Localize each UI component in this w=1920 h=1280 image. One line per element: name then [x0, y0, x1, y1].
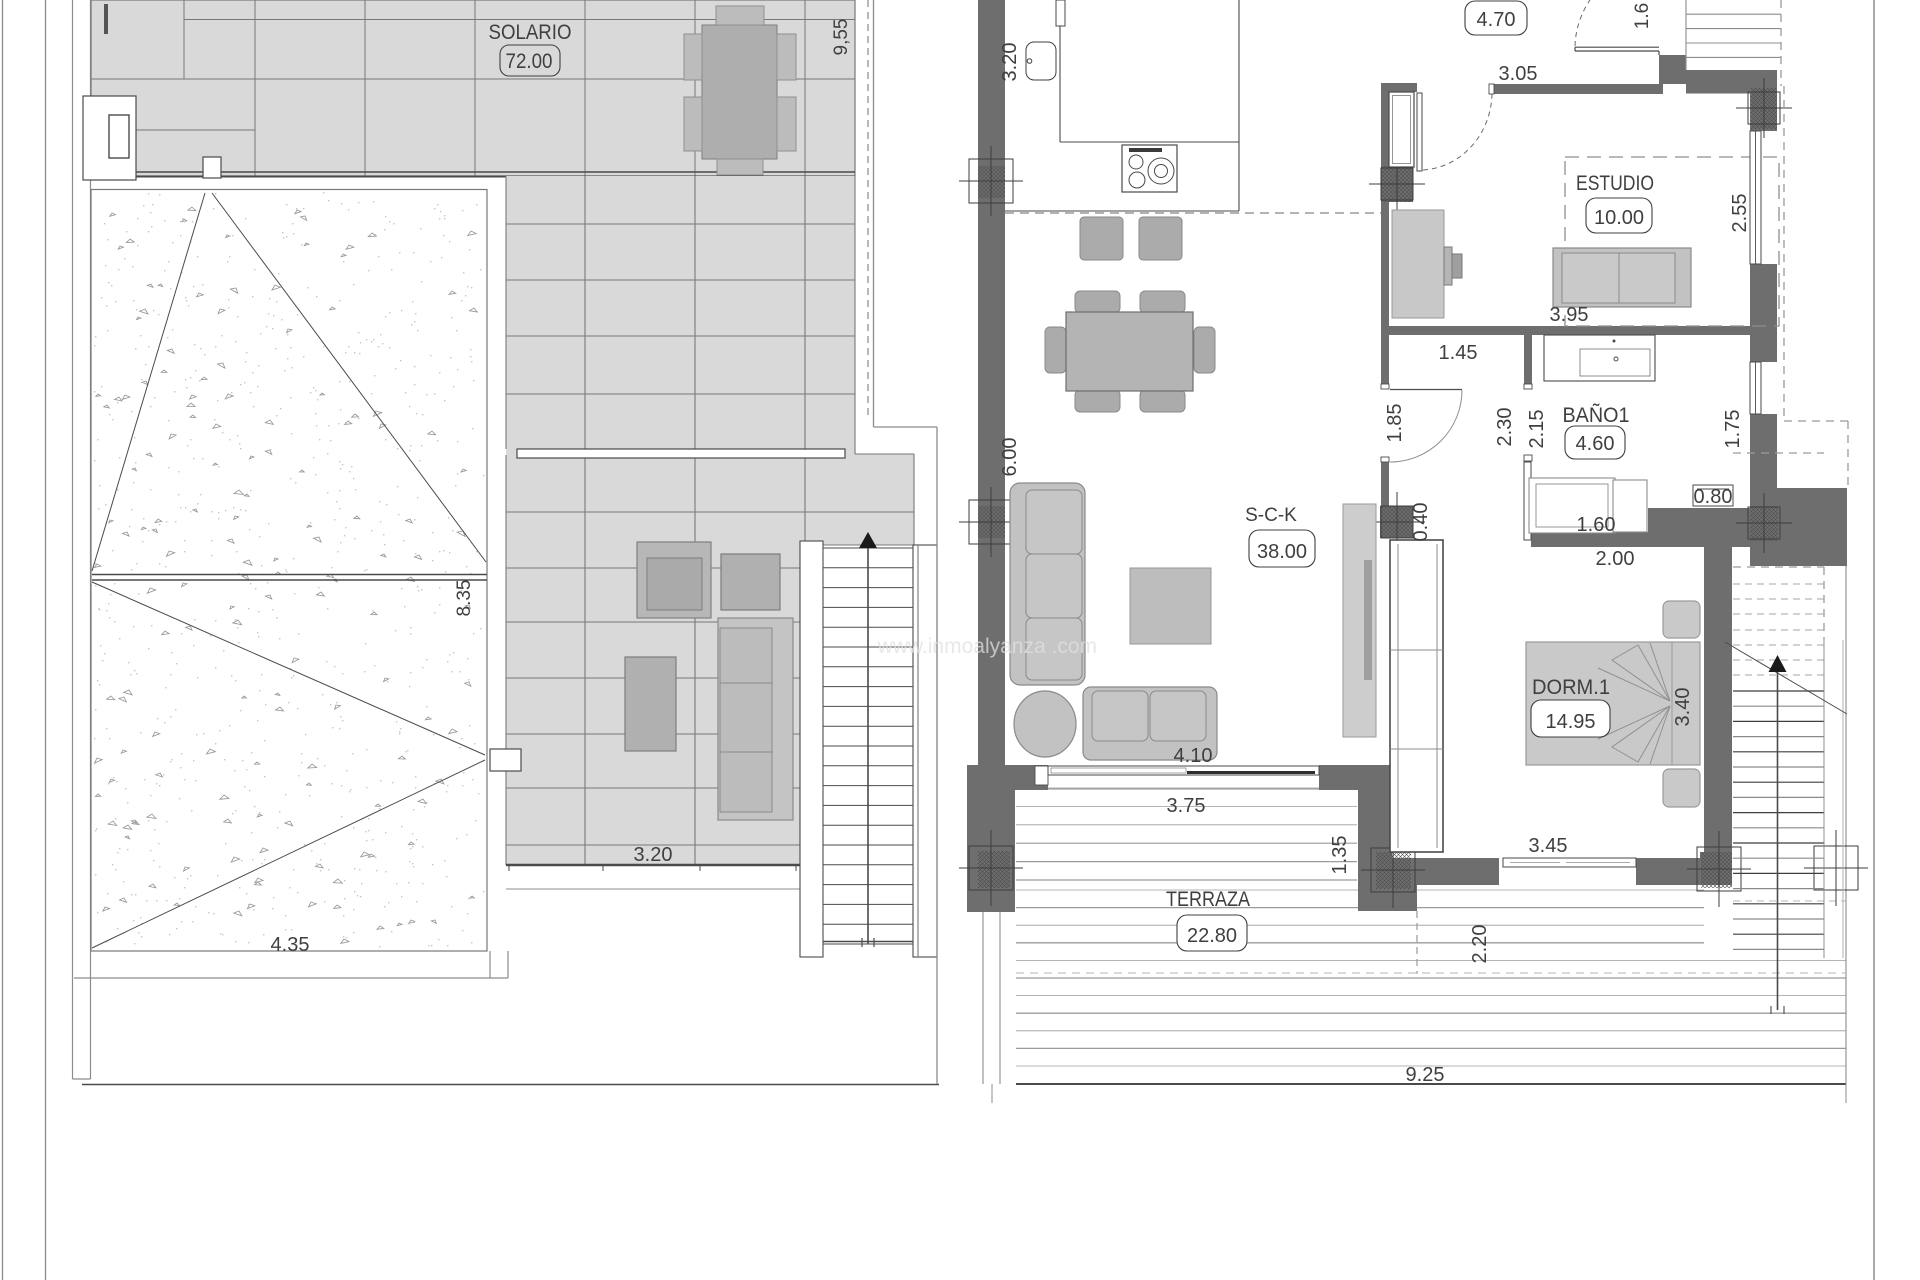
svg-text:1.85: 1.85: [1384, 404, 1406, 443]
svg-text:SOLARIO: SOLARIO: [489, 21, 572, 44]
svg-text:4.70: 4.70: [1477, 9, 1516, 31]
svg-text:1.35: 1.35: [1329, 836, 1351, 875]
svg-text:3.45: 3.45: [1529, 835, 1568, 857]
svg-text:3.95: 3.95: [1550, 304, 1589, 326]
svg-text:0.40: 0.40: [1410, 503, 1432, 542]
svg-text:1.45: 1.45: [1439, 342, 1478, 364]
svg-text:72.00: 72.00: [506, 50, 553, 73]
svg-text:3.20: 3.20: [634, 844, 673, 866]
svg-text:2.30: 2.30: [1494, 408, 1516, 447]
svg-text:www.inmoalyanza .com: www.inmoalyanza .com: [877, 635, 1097, 658]
svg-text:6.00: 6.00: [999, 438, 1021, 477]
svg-text:14.95: 14.95: [1545, 711, 1595, 733]
svg-text:22.80: 22.80: [1187, 925, 1237, 947]
svg-text:10.00: 10.00: [1594, 207, 1644, 229]
svg-text:2.20: 2.20: [1469, 925, 1491, 964]
svg-text:38.00: 38.00: [1257, 541, 1307, 563]
svg-text:2.00: 2.00: [1596, 548, 1635, 570]
svg-text:4.60: 4.60: [1576, 433, 1615, 455]
svg-text:3.75: 3.75: [1167, 795, 1206, 817]
svg-text:1.75: 1.75: [1722, 410, 1744, 449]
svg-text:3.20: 3.20: [999, 43, 1021, 82]
svg-text:3.40: 3.40: [1672, 688, 1694, 727]
svg-text:9.25: 9.25: [1406, 1064, 1445, 1086]
svg-text:8.35: 8.35: [454, 580, 475, 617]
svg-text:4.35: 4.35: [271, 934, 310, 956]
svg-text:1.60: 1.60: [1577, 514, 1616, 536]
svg-text:2.15: 2.15: [1526, 410, 1548, 449]
svg-text:3.05: 3.05: [1499, 63, 1538, 85]
svg-text:4.10: 4.10: [1174, 745, 1213, 767]
svg-text:1.6: 1.6: [1632, 3, 1653, 29]
svg-text:ESTUDIO: ESTUDIO: [1576, 172, 1654, 195]
svg-text:9,55: 9,55: [831, 19, 852, 56]
svg-text:S-C-K: S-C-K: [1245, 505, 1297, 526]
svg-text:TERRAZA: TERRAZA: [1166, 888, 1250, 911]
svg-text:2.55: 2.55: [1729, 194, 1751, 233]
svg-text:DORM.1: DORM.1: [1532, 676, 1610, 699]
svg-text:0.80: 0.80: [1694, 486, 1733, 508]
svg-text:BAÑO1: BAÑO1: [1563, 403, 1630, 427]
